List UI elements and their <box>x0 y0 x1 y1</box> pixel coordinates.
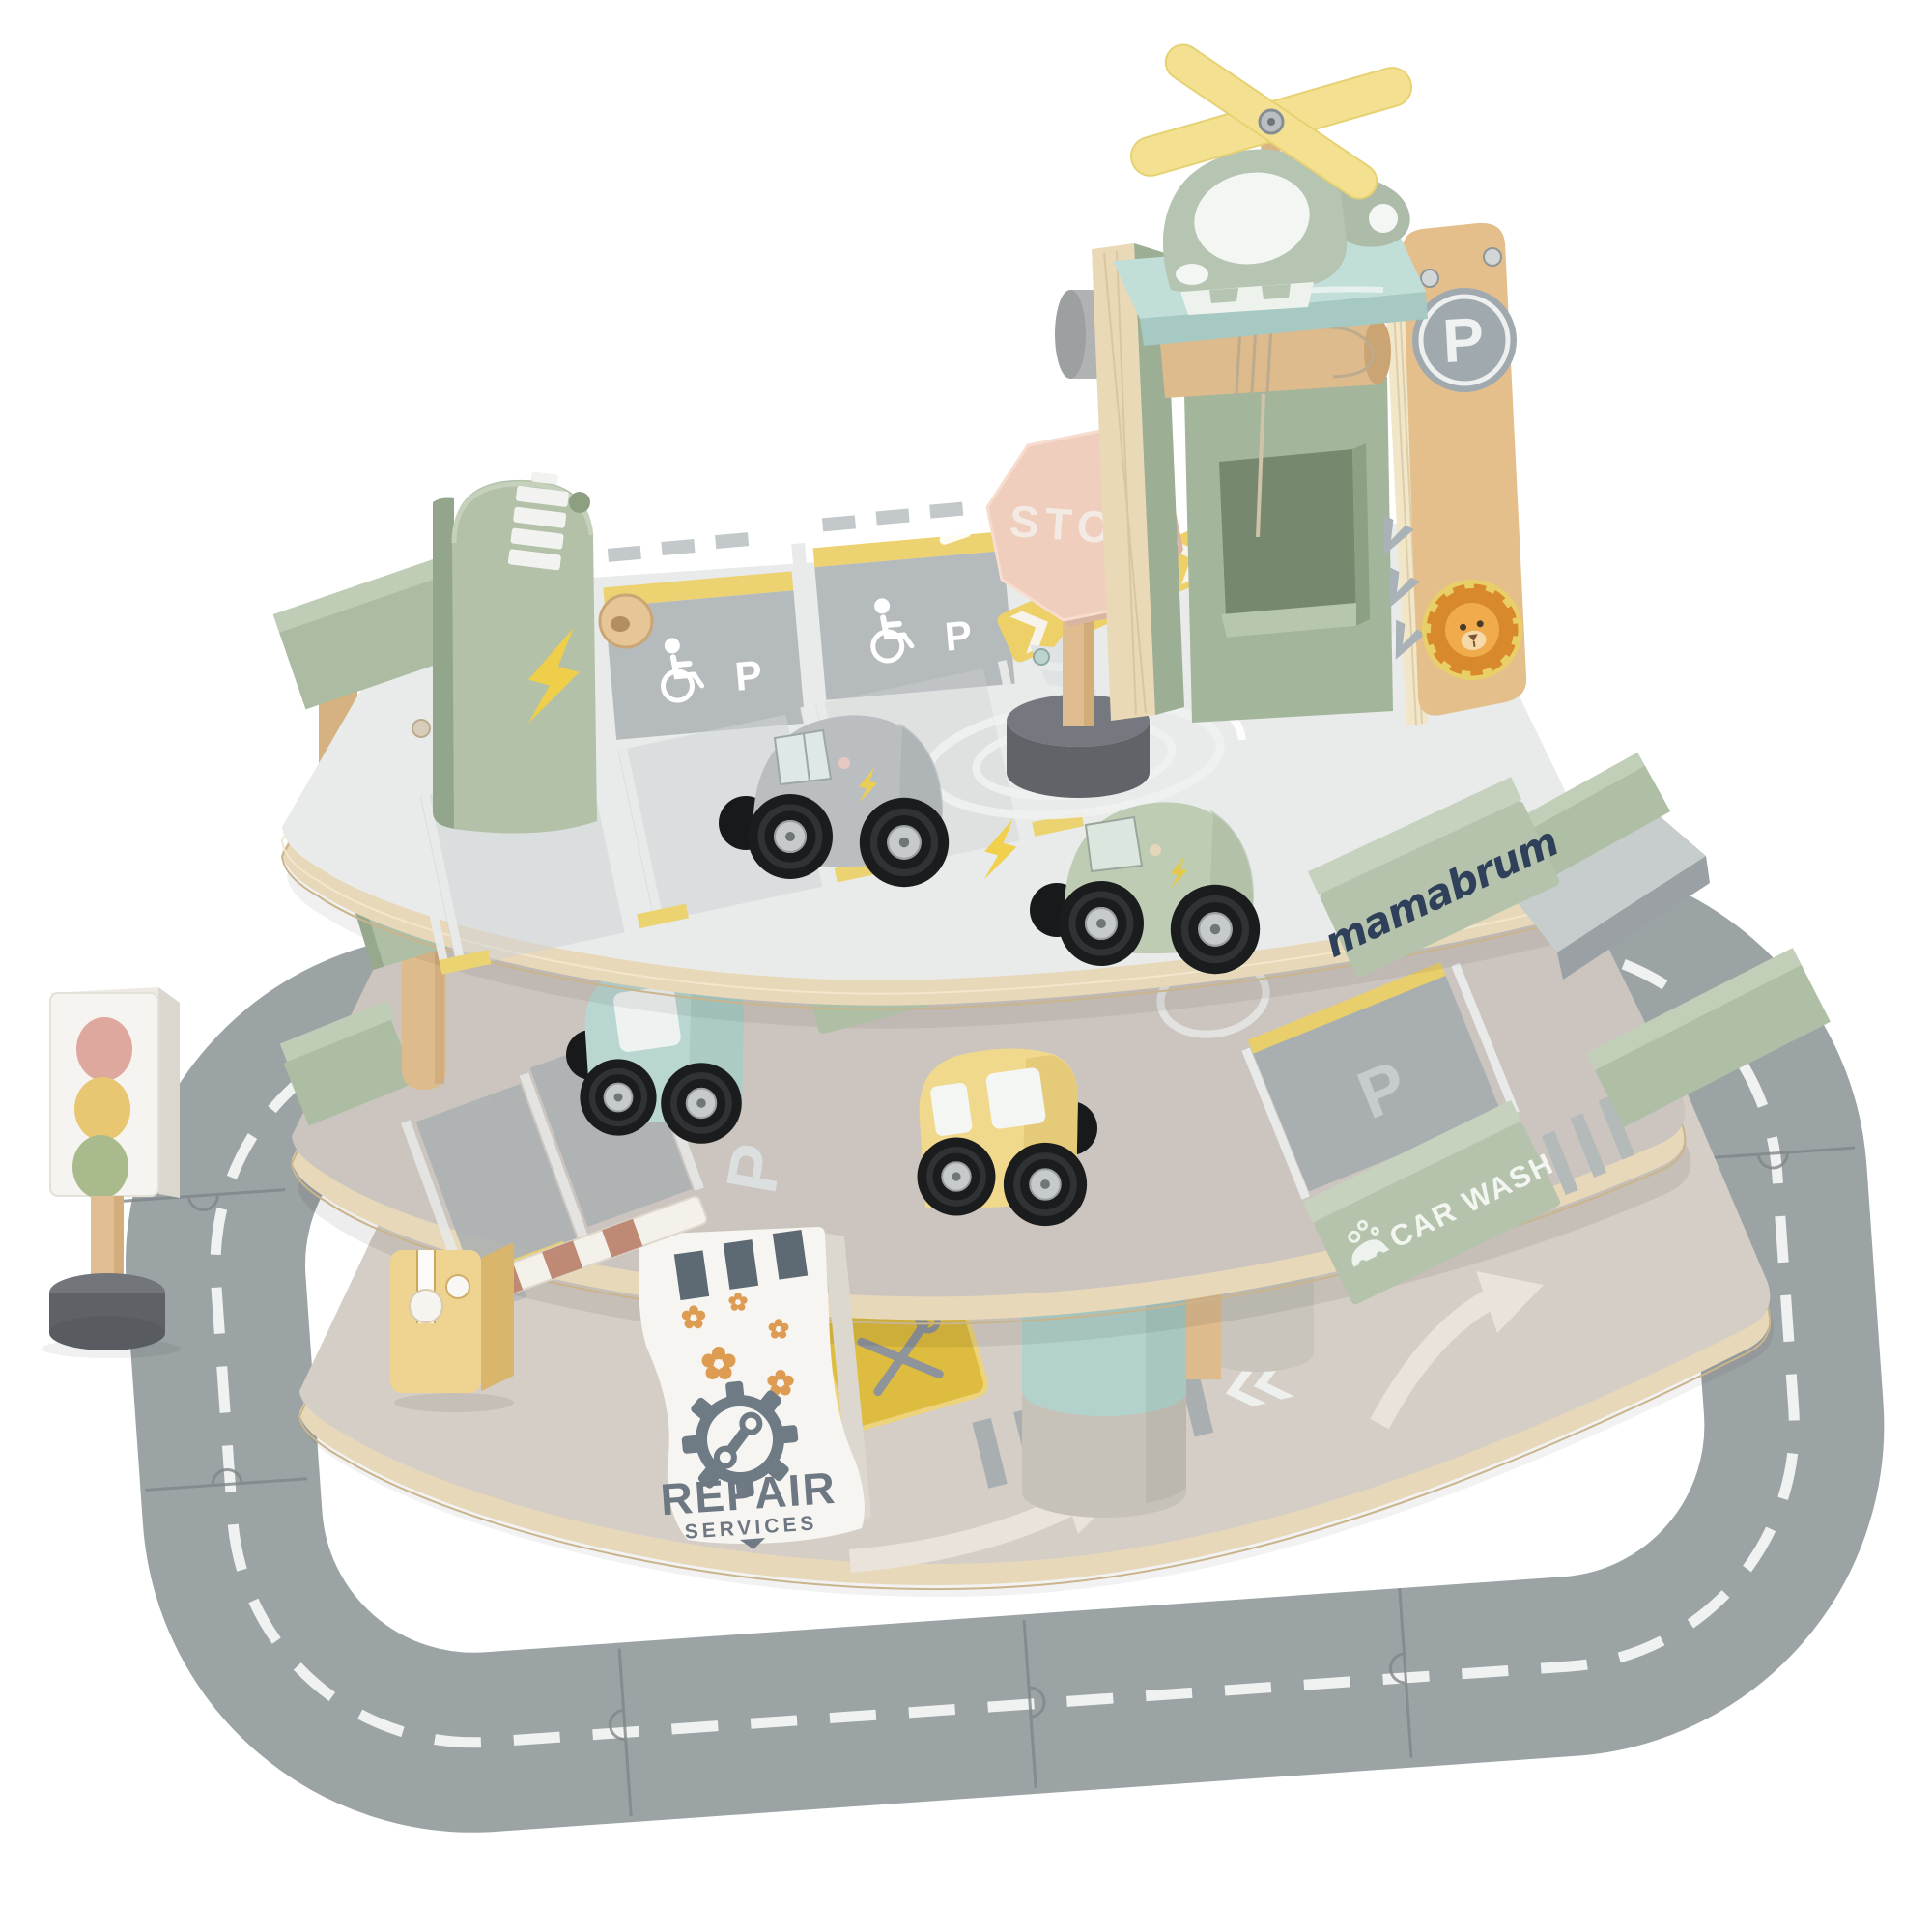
screw <box>1421 270 1438 287</box>
deck-screw-hole <box>412 720 430 737</box>
traffic-light <box>42 987 181 1358</box>
toy-garage-illustration: P P <box>0 0 1932 1932</box>
car-wheel <box>1059 881 1144 966</box>
station-hole <box>569 492 590 513</box>
tower-parking-badge: P <box>1412 288 1517 392</box>
yellow-light <box>74 1077 130 1141</box>
lift-shaft <box>1184 377 1393 723</box>
red-light <box>76 1017 132 1081</box>
barrier-roller <box>410 1290 442 1322</box>
accessible-bay-letter: P <box>943 611 974 659</box>
car-dot-sticker <box>838 757 850 769</box>
product-photo: P P <box>0 0 1932 1932</box>
green-light <box>72 1135 128 1199</box>
yellow-car <box>918 1048 1097 1226</box>
traffic-light-base <box>49 1316 165 1350</box>
car-window <box>985 1066 1047 1129</box>
accessible-bay-letter: P <box>733 652 764 699</box>
car-window <box>775 730 831 784</box>
deck-screw <box>1034 649 1049 665</box>
car-wheel <box>1171 885 1260 974</box>
car-wheel <box>661 1063 742 1144</box>
car-window <box>929 1082 973 1137</box>
car-dot-sticker <box>1150 844 1161 856</box>
car-window <box>1086 817 1142 871</box>
car-wheel <box>860 798 949 887</box>
screw <box>1484 248 1501 266</box>
svg-text:P: P <box>1441 304 1486 376</box>
car-wheel <box>748 794 833 879</box>
barrier-hole <box>446 1275 469 1298</box>
car-wheel <box>580 1059 656 1135</box>
car-wheel <box>918 1138 996 1216</box>
car-wheel <box>1004 1143 1087 1226</box>
wooden-peg <box>600 595 652 647</box>
